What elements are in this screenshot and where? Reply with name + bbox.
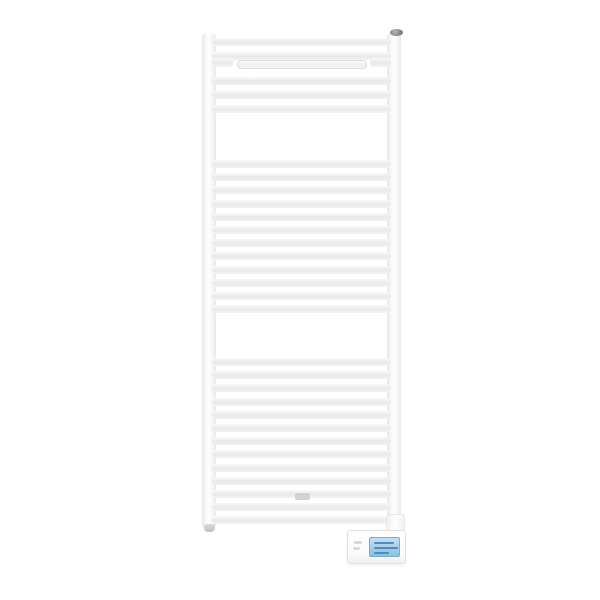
radiator-bar [212, 213, 391, 221]
radiator-bar [212, 450, 391, 458]
hanger-stub-right [370, 58, 391, 67]
radiator-bar [212, 424, 391, 432]
radiator-bar [212, 200, 391, 208]
thermostat-control-unit [347, 530, 406, 564]
control-button [353, 547, 360, 550]
radiator-bar [212, 266, 391, 274]
radiator-bar [212, 160, 391, 168]
radiator-bar [212, 38, 391, 46]
radiator-bar [212, 226, 391, 234]
radiator-bar [212, 477, 391, 485]
radiator-bar [212, 105, 391, 113]
radiator-bar [212, 398, 391, 406]
lcd-text-line [374, 552, 389, 554]
scene [0, 0, 600, 600]
radiator-bar [212, 91, 391, 99]
pipe-connector [204, 524, 215, 532]
radiator-bar [212, 173, 391, 181]
radiator-bar [212, 371, 391, 379]
radiator-bar [212, 292, 391, 300]
cable-clip [295, 493, 310, 500]
radiator-bar [212, 437, 391, 445]
lcd-text-line [374, 547, 398, 549]
lcd-text-line [374, 542, 394, 544]
radiator-bar [212, 305, 391, 313]
right-rail-end-cap [386, 514, 405, 531]
radiator-bar [212, 516, 391, 524]
radiator-bar [212, 464, 391, 472]
control-button [354, 541, 362, 544]
radiator-bar [212, 77, 391, 85]
air-vent-cap-icon [390, 29, 403, 36]
lcd-screen [369, 537, 400, 557]
radiator-bar [212, 252, 391, 260]
towel-hanger-bar [237, 60, 367, 69]
radiator-bar [212, 411, 391, 419]
radiator-bar [212, 503, 391, 511]
radiator-bar [212, 384, 391, 392]
radiator-bar [212, 52, 391, 60]
radiator-bar [212, 186, 391, 194]
hanger-stub-left [212, 58, 233, 67]
radiator-bar [212, 239, 391, 247]
radiator-bar [212, 358, 391, 366]
radiator-bar [212, 279, 391, 287]
